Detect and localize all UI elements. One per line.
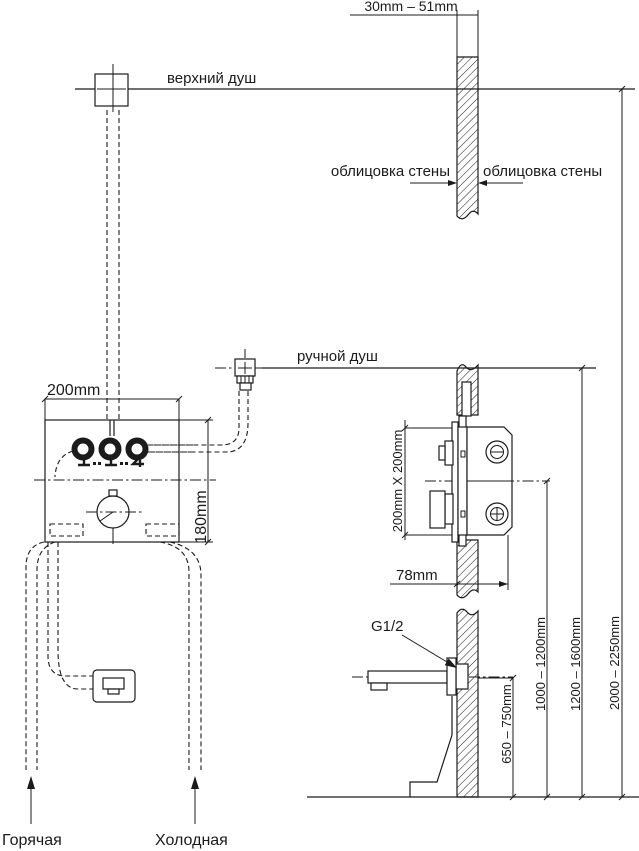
spout-branch-pipe bbox=[58, 542, 93, 689]
thread-size-label: G1/2 bbox=[371, 618, 404, 635]
hand-shower-height-label: 1200 – 1600mm bbox=[568, 617, 583, 711]
overhead-shower-label: верхний душ bbox=[167, 70, 256, 87]
wall-cladding-left-label: облицовка стены bbox=[331, 163, 450, 180]
hot-supply-pipe bbox=[26, 542, 44, 770]
supply-pipes: Горячая Холодная bbox=[2, 542, 228, 849]
mixer-front-view: 200mm 180mm bbox=[34, 382, 216, 545]
cold-supply-pipe bbox=[170, 542, 201, 770]
outlet-ring-icon bbox=[102, 441, 119, 458]
hand-shower-label: ручной душ bbox=[297, 348, 378, 365]
arrow-icon bbox=[448, 180, 457, 186]
arrow-icon bbox=[478, 180, 487, 186]
inlet-port bbox=[50, 524, 83, 536]
hot-supply-pipe bbox=[37, 542, 55, 770]
overhead-shower-symbol bbox=[95, 74, 128, 106]
wall-thickness-label: 30mm – 51mm bbox=[364, 0, 457, 14]
wall-cladding-right-label: облицовка стены bbox=[483, 163, 602, 180]
spout-branch-pipe bbox=[48, 542, 93, 676]
hot-supply-label: Горячая bbox=[2, 832, 62, 849]
mixer-height-dim-label: 1000 – 1200mm bbox=[533, 617, 548, 711]
overhead-height-label: 2000 – 2250mm bbox=[607, 616, 622, 710]
cold-flow-arrow-icon bbox=[191, 776, 199, 789]
body-size-label: 200mm X 200mm bbox=[390, 430, 405, 533]
diagram-svg: 30mm – 51mm верхний душ облицовка стены … bbox=[0, 0, 639, 851]
cold-supply-label: Холодная bbox=[155, 832, 228, 849]
outlet-ring-icon bbox=[129, 441, 146, 458]
temperature-lever bbox=[430, 491, 445, 528]
knob-lower bbox=[445, 494, 453, 524]
concealed-elbow bbox=[462, 382, 471, 416]
hand-shower-hose bbox=[148, 391, 248, 452]
dimension-wall-thickness: 30mm – 51mm bbox=[350, 0, 478, 57]
outlet-ring-icon bbox=[75, 441, 92, 458]
mixer-height-label: 180mm bbox=[193, 490, 210, 543]
spout-side-symbol bbox=[368, 671, 447, 683]
overhead-shower: верхний душ bbox=[75, 64, 635, 420]
inlet-port bbox=[146, 524, 179, 536]
knob-upper bbox=[445, 441, 453, 465]
wall-section-upper bbox=[457, 57, 478, 219]
spout-height-label: 650 – 750mm bbox=[499, 684, 514, 764]
hand-shower: ручной душ bbox=[148, 348, 596, 452]
mixer-width-label: 200mm bbox=[47, 382, 100, 399]
tub-profile bbox=[410, 696, 452, 797]
depth-label: 78mm bbox=[396, 567, 438, 584]
hot-flow-arrow-icon bbox=[27, 776, 35, 789]
mounting-plate bbox=[458, 427, 467, 535]
cold-supply-pipe bbox=[160, 542, 189, 770]
wall-section-lower bbox=[457, 609, 478, 797]
installation-diagram: 30mm – 51mm верхний душ облицовка стены … bbox=[0, 0, 639, 851]
arrow-icon bbox=[499, 581, 508, 587]
